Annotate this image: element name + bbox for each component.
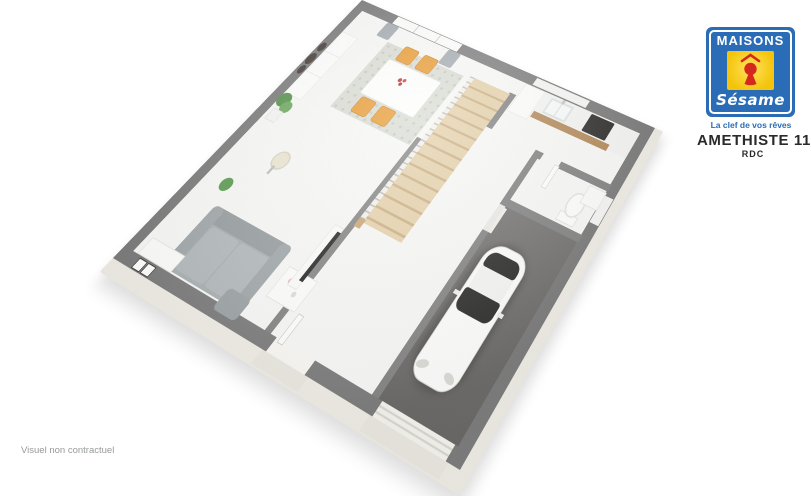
model-name: AMETHISTE 110 GI (697, 132, 811, 149)
logo-tagline: La clef de vos rêves (694, 120, 808, 130)
logo-yellow-square (727, 51, 774, 90)
logo-subtitle: Sésame (706, 91, 795, 109)
logo-title: MAISONS (706, 33, 795, 48)
disclaimer-text: Visuel non contractuel (21, 445, 114, 456)
maisons-sesame-logo: MAISONS Sésame (706, 27, 795, 117)
keyhole-icon (727, 51, 774, 90)
floor-level: RDC (697, 149, 809, 159)
page: { "branding": { "logo_title": "MAISONS",… (0, 0, 811, 480)
floor-plan-3d (100, 0, 664, 496)
